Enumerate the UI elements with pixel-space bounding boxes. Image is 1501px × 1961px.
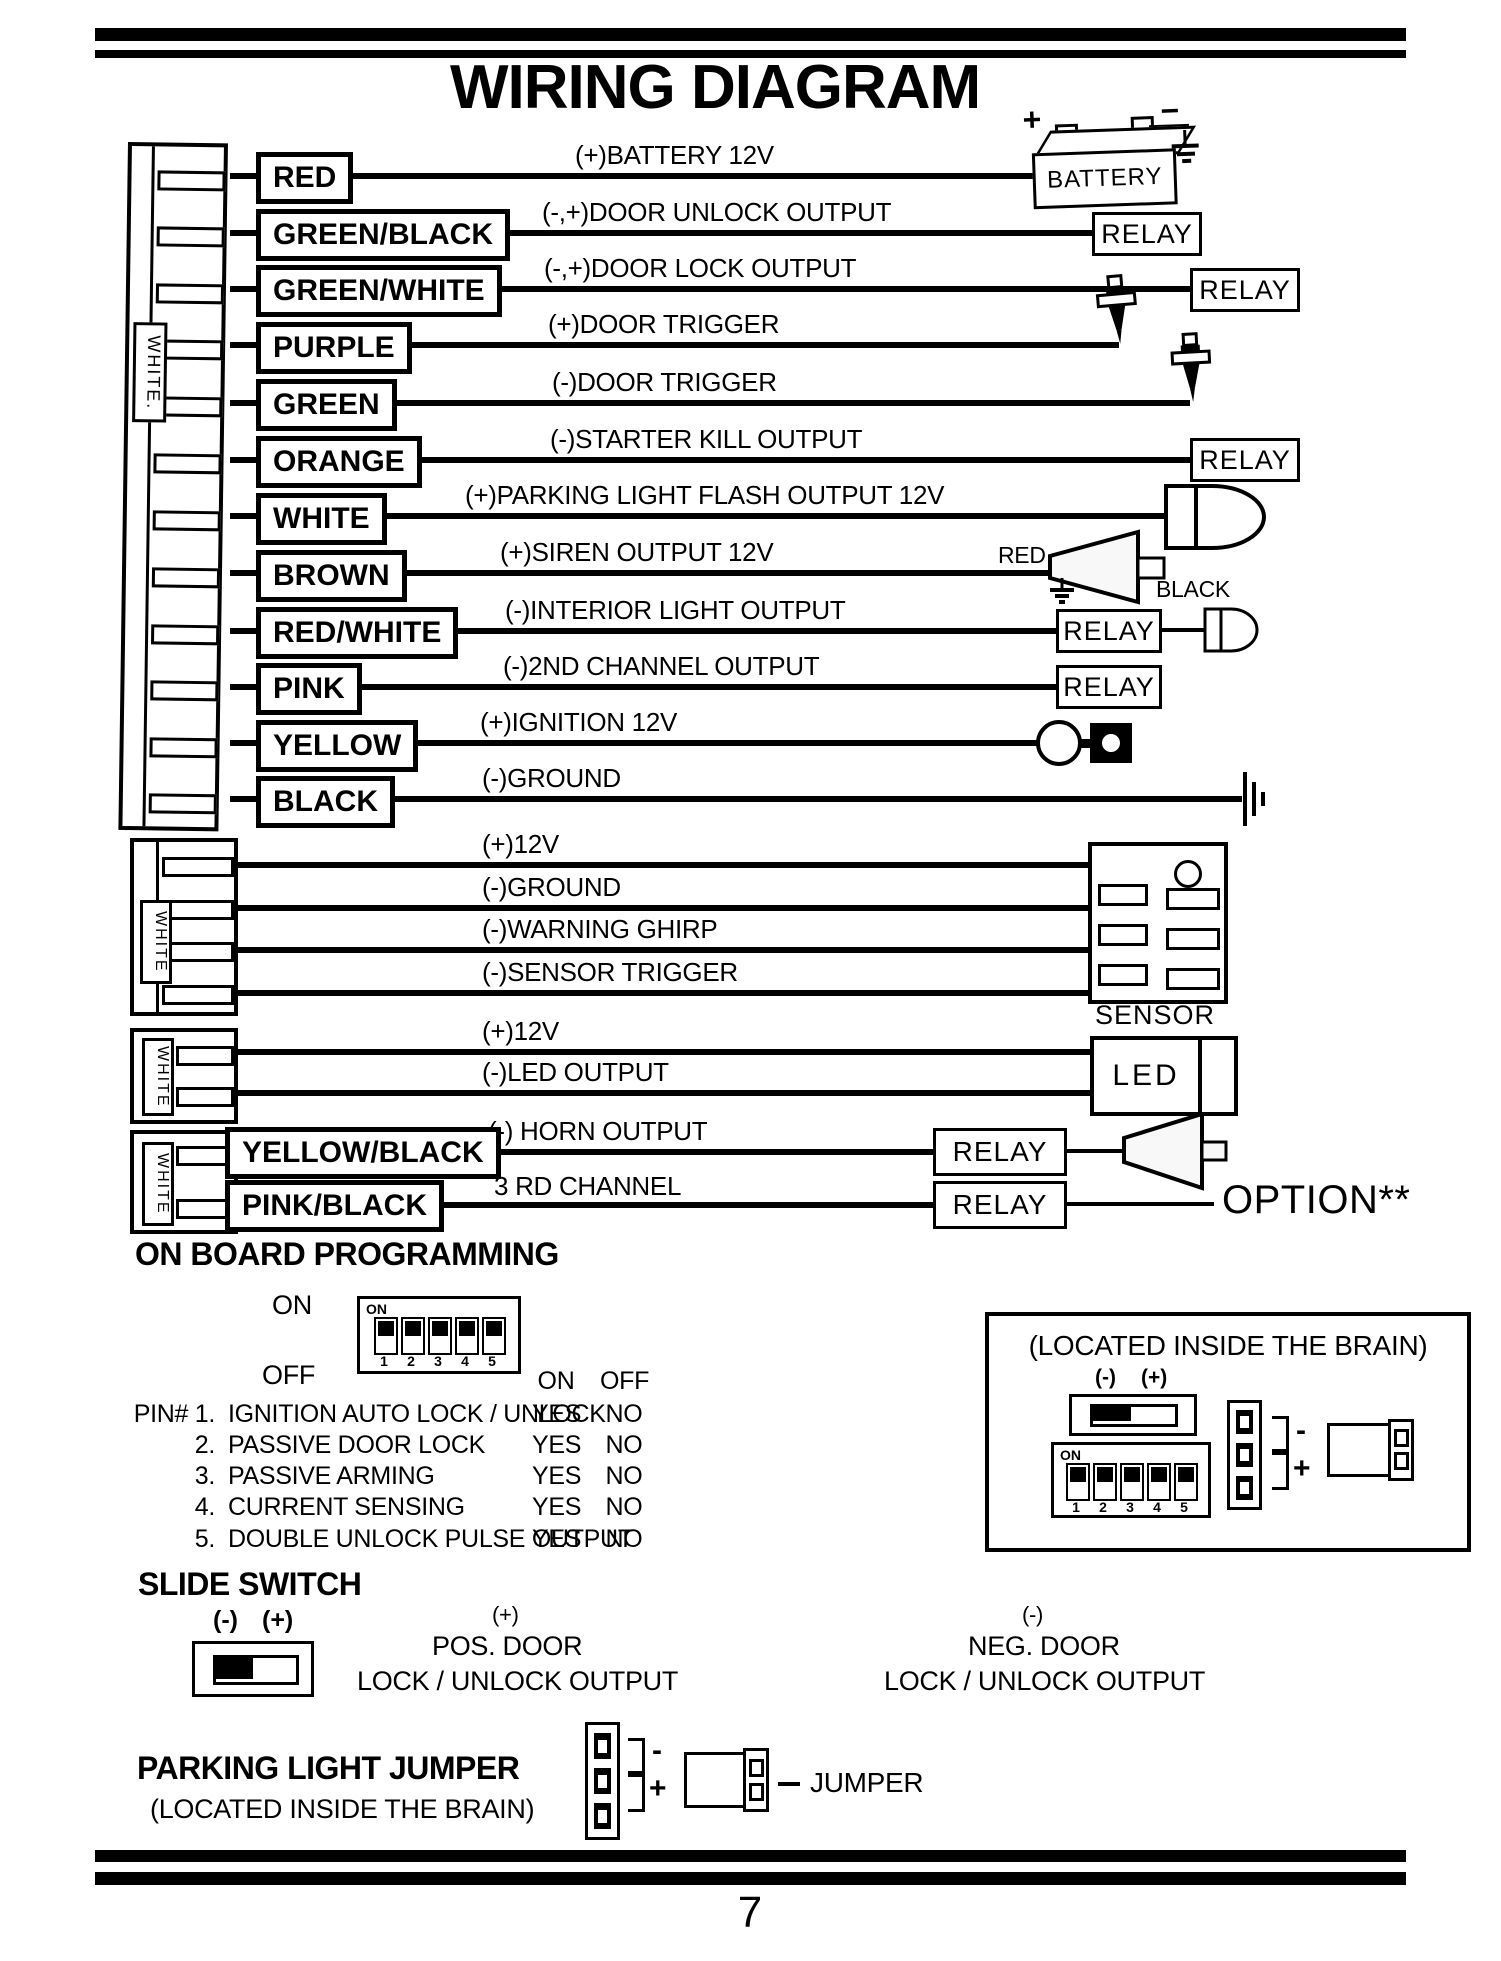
sensor-slot <box>1166 928 1220 950</box>
jumper-minus-sign: - <box>652 1734 662 1768</box>
page-title: WIRING DIAGRAM <box>450 52 980 123</box>
dip-switch-toggle <box>482 1317 506 1355</box>
top-rule-thick <box>95 28 1406 41</box>
ground-icon <box>1182 159 1191 163</box>
dip-on-label: ON <box>272 1290 312 1321</box>
dip-on-marking: ON <box>1060 1447 1081 1463</box>
wire-function-label: 3 RD CHANNEL <box>494 1171 681 1202</box>
horn-connector-label: WHITE <box>142 1142 174 1226</box>
brain-box-title: (LOCATED INSIDE THE BRAIN) <box>989 1330 1467 1362</box>
ground-icon <box>1183 130 1186 144</box>
plug-slot <box>1394 1452 1409 1470</box>
wire-line <box>1162 628 1206 632</box>
horn-icon <box>1122 1112 1238 1197</box>
harness-plug-icon <box>1327 1423 1391 1477</box>
led-connector: WHITE <box>130 1028 238 1124</box>
wire-function-label: (+)BATTERY 12V <box>575 140 774 171</box>
connector-pin <box>150 680 218 701</box>
jumper-plus-sign: + <box>1293 1452 1311 1486</box>
jumper-header-icon <box>1227 1400 1262 1510</box>
connector-pin <box>162 985 234 1005</box>
wire-function-label: (-)GROUND <box>482 872 621 903</box>
parking-jumper-subheading: (LOCATED INSIDE THE BRAIN) <box>150 1794 534 1825</box>
table-row-num: 2. <box>115 1431 215 1460</box>
slide-plus-label: (+) <box>262 1606 293 1635</box>
bottom-rule-thick <box>95 1872 1406 1885</box>
wire-function-label: (+)12V <box>482 1016 559 1047</box>
led-box-divider <box>1198 1040 1202 1112</box>
slide-switch <box>192 1641 314 1697</box>
neg-door-line2: LOCK / UNLOCK OUTPUT <box>884 1666 1205 1697</box>
jumper-pin-hole <box>598 1775 607 1788</box>
wire-line <box>236 947 1088 953</box>
wire-color-box: BLACK <box>256 776 395 828</box>
wire-function-label: (-)STARTER KILL OUTPUT <box>550 424 862 455</box>
dip-switch-toggle <box>1066 1463 1090 1501</box>
table-row-label: PASSIVE ARMING <box>228 1462 435 1491</box>
table-row-num: 3. <box>115 1462 215 1491</box>
horn-connector: WHITE <box>130 1130 238 1234</box>
parking-light-bulb-icon <box>1162 482 1274 557</box>
wire-color-box: GREEN <box>256 379 397 431</box>
wire-color-box: GREEN/BLACK <box>256 209 510 261</box>
relay-box: RELAY <box>1092 212 1202 256</box>
wire-function-label: (-)WARNING GHIRP <box>482 914 717 945</box>
wire-line <box>236 905 1088 911</box>
jumper-bracket <box>1272 1452 1289 1490</box>
siren-icon <box>1046 528 1178 621</box>
table-row-label: CURRENT SENSING <box>228 1493 465 1522</box>
sensor-slot <box>1166 968 1220 990</box>
dip-switch-toggle <box>1120 1463 1144 1501</box>
brain-box: (LOCATED INSIDE THE BRAIN) (-) (+) ON 1 … <box>985 1312 1471 1552</box>
table-row-num: 4. <box>115 1493 215 1522</box>
jumper-minus-sign: - <box>1296 1414 1306 1448</box>
bottom-rule-thin <box>95 1850 1406 1862</box>
wire-line <box>236 990 1088 996</box>
wire-function-label: (+)IGNITION 12V <box>480 707 677 738</box>
jumper-bracket <box>628 1738 645 1774</box>
pos-door-line2: LOCK / UNLOCK OUTPUT <box>357 1666 678 1697</box>
wire-function-label: (+)DOOR TRIGGER <box>548 309 779 340</box>
slide-knob <box>216 1658 253 1679</box>
table-col-on: ON <box>532 1367 580 1396</box>
sensor-slot <box>1166 888 1220 910</box>
table-row-on: YES <box>532 1462 580 1491</box>
wire-function-label: (-,+)DOOR LOCK OUTPUT <box>544 253 856 284</box>
dip-number: 1 <box>372 1353 396 1369</box>
wire-function-label: (+)PARKING LIGHT FLASH OUTPUT 12V <box>465 480 944 511</box>
connector-pin <box>152 567 220 588</box>
dip-switch-toggle <box>1147 1463 1171 1501</box>
dip-number: 1 <box>1064 1499 1088 1515</box>
wire-function-label: (+)12V <box>482 829 559 860</box>
wire-color-box: YELLOW <box>256 720 418 772</box>
option-label: OPTION** <box>1222 1178 1410 1223</box>
connector-pin <box>176 1046 234 1066</box>
wire-function-label: (-)LED OUTPUT <box>482 1057 669 1088</box>
programming-heading: ON BOARD PROGRAMMING <box>135 1236 559 1273</box>
table-row-on: YES <box>532 1493 580 1522</box>
relay-box: RELAY <box>933 1181 1067 1229</box>
dip-on-marking: ON <box>366 1301 387 1317</box>
led-label: LED <box>1094 1040 1198 1112</box>
wire-color-box: PINK <box>256 663 362 715</box>
wire-function-label: (-,+)DOOR UNLOCK OUTPUT <box>542 197 891 228</box>
brain-plus-label: (+) <box>1141 1366 1167 1390</box>
interior-light-bulb-icon <box>1202 604 1266 661</box>
dip-number: 4 <box>1145 1499 1169 1515</box>
wire-line <box>236 1049 1093 1055</box>
brain-slide-switch <box>1069 1394 1197 1436</box>
table-row-label: PASSIVE DOOR LOCK <box>228 1431 485 1460</box>
table-row-off: NO <box>600 1400 648 1429</box>
dip-off-label: OFF <box>262 1360 315 1391</box>
dip-number: 5 <box>480 1353 504 1369</box>
dip-switch-toggle <box>428 1317 452 1355</box>
led-box: LED <box>1090 1036 1238 1116</box>
led-connector-label: WHITE <box>142 1038 174 1116</box>
dip-switch-toggle <box>401 1317 425 1355</box>
sensor-connector: WHITE <box>130 838 238 1016</box>
relay-box: RELAY <box>1056 665 1162 709</box>
wire-color-box: RED/WHITE <box>256 607 458 659</box>
jumper-pin-hole <box>598 1810 607 1823</box>
slide-switch-heading: SLIDE SWITCH <box>138 1566 361 1603</box>
brain-dip-switch: ON 1 2 3 4 5 <box>1051 1442 1211 1518</box>
pos-door-sign: (+) <box>492 1602 519 1628</box>
jumper-plus-sign: + <box>649 1772 667 1806</box>
wire-color-box: PINK/BLACK <box>225 1180 444 1232</box>
dip-number: 2 <box>1091 1499 1115 1515</box>
sensor-connector-label: WHITE <box>140 900 172 984</box>
sensor-box <box>1088 842 1228 1004</box>
connector-pin <box>156 283 224 304</box>
connector-pin <box>157 170 225 191</box>
connector-pin <box>149 737 217 758</box>
connector-spine <box>142 146 154 826</box>
neg-door-sign: (-) <box>1022 1602 1043 1628</box>
main-connector-label: WHITE. <box>132 322 167 422</box>
plug-slot <box>749 1783 764 1801</box>
battery-body: BATTERY <box>1032 148 1178 209</box>
table-row-num: 5. <box>115 1525 215 1554</box>
dip-number: 3 <box>426 1353 450 1369</box>
wire-color-box: RED <box>256 152 353 204</box>
table-row-off: NO <box>600 1431 648 1460</box>
dip-number: 4 <box>453 1353 477 1369</box>
page-number: 7 <box>720 1888 780 1938</box>
main-harness-connector: WHITE. <box>118 142 228 831</box>
dip-switch-toggle <box>455 1317 479 1355</box>
jumper-pointer-line <box>778 1782 800 1786</box>
relay-box: RELAY <box>1056 609 1162 653</box>
jumper-bracket <box>1272 1416 1289 1452</box>
jumper-pin-hole <box>1240 1482 1249 1494</box>
neg-door-line1: NEG. DOOR <box>968 1631 1120 1662</box>
wire-line <box>236 862 1088 868</box>
table-col-off: OFF <box>600 1367 648 1396</box>
brain-minus-label: (-) <box>1095 1366 1116 1390</box>
ground-icon <box>1172 143 1199 148</box>
wire-line <box>1064 1149 1126 1153</box>
wire-line <box>1064 1202 1214 1206</box>
connector-pin <box>157 226 225 247</box>
parking-jumper-heading: PARKING LIGHT JUMPER <box>137 1750 519 1787</box>
relay-box: RELAY <box>1190 268 1300 312</box>
slide-knob <box>1093 1407 1131 1421</box>
jumper-pin-hole <box>1240 1449 1249 1461</box>
jumper-bracket <box>628 1774 645 1812</box>
wire-color-box: BROWN <box>256 550 407 602</box>
wiring-diagram-page: WIRING DIAGRAM WHITE. (+)BATTERY 12V RED… <box>0 0 1501 1961</box>
connector-pin <box>176 1087 234 1107</box>
table-row-on: YES <box>532 1431 580 1460</box>
connector-pin <box>162 942 234 962</box>
pin-switch-icon <box>1168 331 1216 410</box>
sensor-label: SENSOR <box>1092 1000 1218 1031</box>
pos-door-line1: POS. DOOR <box>432 1631 582 1662</box>
jumper-header-icon <box>585 1722 620 1840</box>
dip-number: 2 <box>399 1353 423 1369</box>
table-row-num: PIN# 1. <box>115 1400 215 1429</box>
jumper-pin-hole <box>1240 1416 1249 1428</box>
jumper-label: JUMPER <box>810 1767 923 1799</box>
wire-function-label: (+)SIREN OUTPUT 12V <box>500 537 773 568</box>
relay-box: RELAY <box>1190 438 1300 482</box>
wire-color-box: GREEN/WHITE <box>256 265 502 317</box>
wire-function-label: (-)2ND CHANNEL OUTPUT <box>503 651 819 682</box>
table-row-off: NO <box>600 1525 648 1554</box>
dip-number: 3 <box>1118 1499 1142 1515</box>
wire-function-label: (-)SENSOR TRIGGER <box>482 957 738 988</box>
pin-switch-icon <box>1093 272 1144 353</box>
wire-line <box>236 1090 1093 1096</box>
wire-function-label: (-)DOOR TRIGGER <box>552 367 777 398</box>
slide-minus-label: (-) <box>213 1606 238 1635</box>
wire-function-label: (-) HORN OUTPUT <box>488 1116 707 1147</box>
sensor-button <box>1174 860 1202 888</box>
connector-pin <box>162 857 234 877</box>
wire-color-box: ORANGE <box>256 436 422 488</box>
ignition-switch-icon <box>1034 715 1138 776</box>
wire-color-box: WHITE <box>256 493 387 545</box>
plug-slot <box>749 1759 764 1777</box>
wire-function-label: (-)GROUND <box>482 763 621 794</box>
harness-plug-side <box>1388 1419 1414 1481</box>
dip-switch-toggle <box>1174 1463 1198 1501</box>
table-row-on: YES <box>532 1400 580 1429</box>
table-row-off: NO <box>600 1462 648 1491</box>
connector-pin <box>153 510 221 531</box>
connector-pin <box>149 793 217 814</box>
jumper-pin-hole <box>598 1740 607 1753</box>
harness-plug-icon <box>684 1752 746 1808</box>
sensor-slot <box>1098 884 1148 906</box>
connector-pin <box>153 453 221 474</box>
wire-color-box: PURPLE <box>256 322 412 374</box>
wire-color-box: YELLOW/BLACK <box>225 1127 501 1179</box>
dip-switch-toggle <box>1093 1463 1117 1501</box>
siren-red-wire-label: RED <box>998 542 1046 569</box>
table-row-off: NO <box>600 1493 648 1522</box>
ground-symbol-icon <box>1240 767 1268 836</box>
ground-icon <box>1177 152 1195 157</box>
plug-slot <box>1394 1429 1409 1447</box>
sensor-slot <box>1098 924 1148 946</box>
table-row-on: YES <box>532 1525 580 1554</box>
connector-pin <box>151 624 219 645</box>
relay-box: RELAY <box>933 1128 1067 1176</box>
connector-pin <box>162 900 234 920</box>
wire-function-label: (-)INTERIOR LIGHT OUTPUT <box>505 595 845 626</box>
dip-number: 5 <box>1172 1499 1196 1515</box>
dip-switch-toggle <box>374 1317 398 1355</box>
battery-icon: + − BATTERY <box>1020 92 1234 219</box>
battery-plus-sign: + <box>1022 101 1042 139</box>
dip-switch: ON 1 2 3 4 5 <box>357 1296 521 1374</box>
harness-plug-side <box>743 1748 769 1812</box>
sensor-slot <box>1098 964 1148 986</box>
